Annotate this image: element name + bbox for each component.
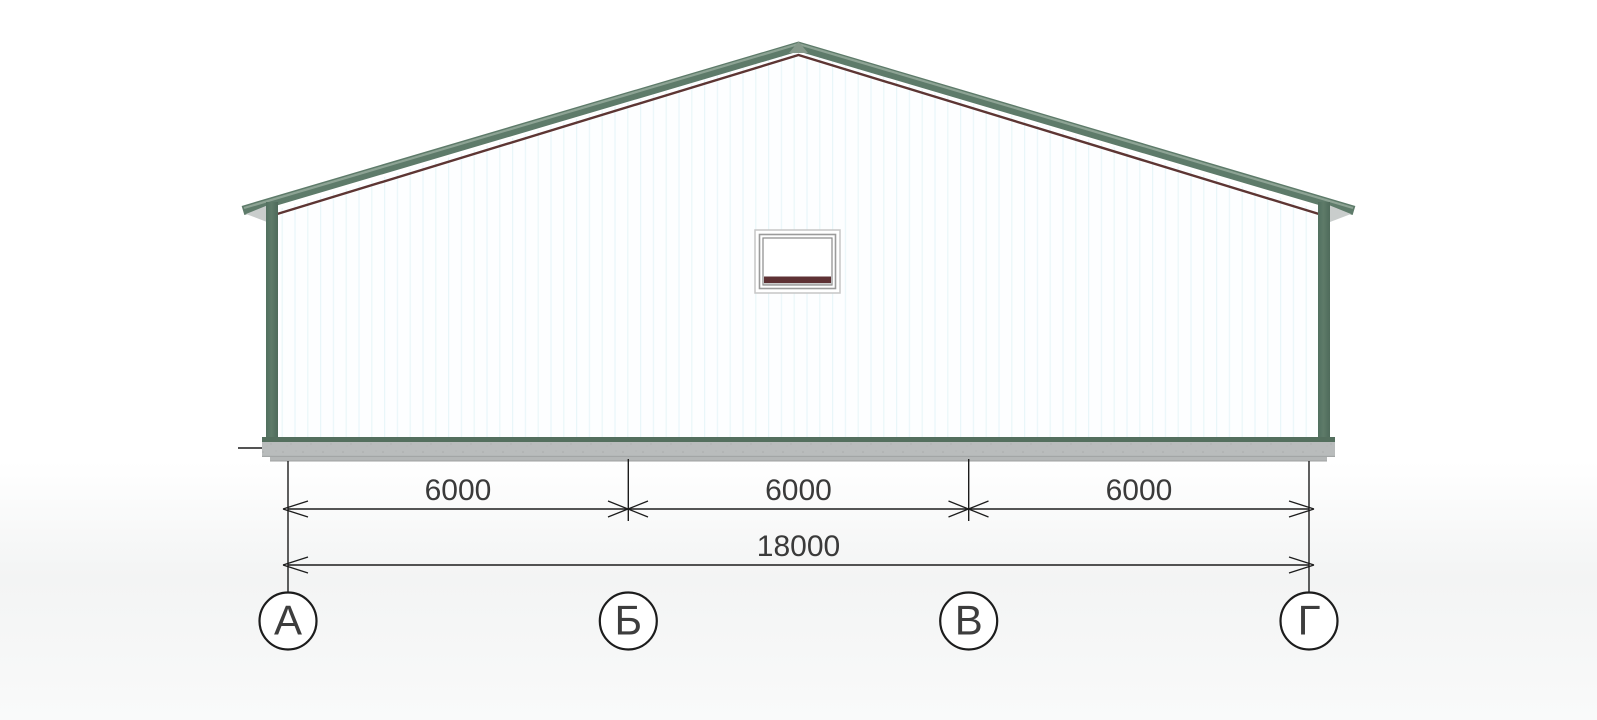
foundation-edge-line <box>262 456 1335 457</box>
grid-label-b: Б <box>615 597 643 644</box>
louver-vent <box>755 230 840 293</box>
base-trim <box>262 437 1335 443</box>
grid-label-g: Г <box>1298 597 1321 644</box>
dimension-text-bay2: 6000 <box>765 474 832 507</box>
elevation-drawing: 6000 6000 6000 18000 А Б В Г <box>0 0 1597 720</box>
column-left <box>266 202 278 438</box>
grid-label-a: А <box>274 597 302 644</box>
vent-slat-shadow <box>764 283 831 284</box>
foundation-step-edge <box>270 461 1327 462</box>
vent-slat <box>764 277 831 284</box>
dimension-text-bay3: 6000 <box>1106 474 1173 507</box>
dimension-text-bay1: 6000 <box>425 474 492 507</box>
elevation-canvas: 6000 6000 6000 18000 А Б В Г <box>0 0 1597 720</box>
column-right <box>1318 202 1330 438</box>
foundation-texture <box>262 442 1335 457</box>
dimension-text-overall: 18000 <box>757 530 840 563</box>
grid-label-v: В <box>955 597 983 644</box>
